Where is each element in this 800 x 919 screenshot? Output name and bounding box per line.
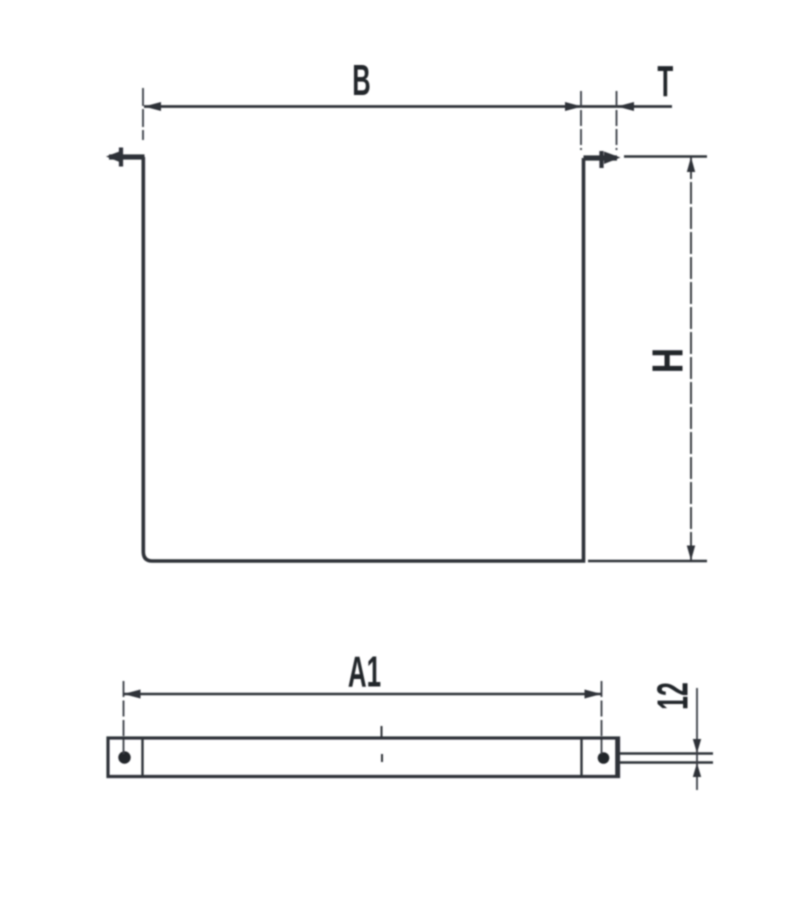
svg-text:T: T bbox=[657, 56, 673, 106]
svg-text:H: H bbox=[644, 348, 693, 373]
svg-text:A1: A1 bbox=[348, 646, 381, 696]
svg-text:B: B bbox=[352, 55, 370, 105]
svg-text:12: 12 bbox=[648, 682, 697, 709]
